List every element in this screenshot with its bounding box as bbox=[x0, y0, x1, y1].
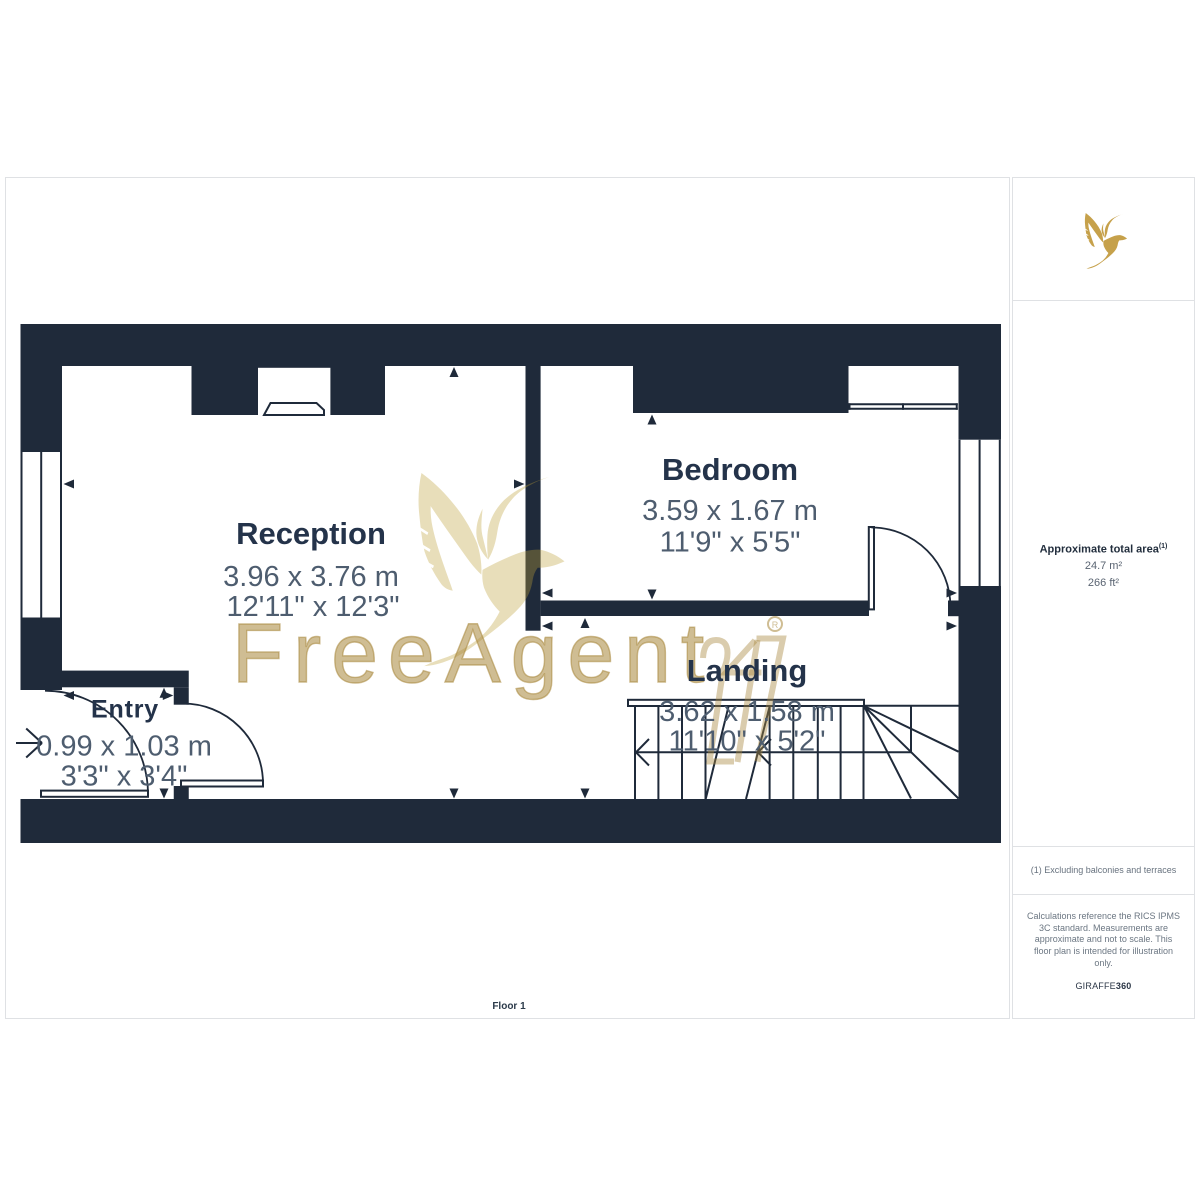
svg-text:Landing: Landing bbox=[687, 653, 808, 688]
svg-text:11'10" x 5'2": 11'10" x 5'2" bbox=[669, 726, 826, 758]
svg-text:12'11" x 12'3": 12'11" x 12'3" bbox=[226, 591, 399, 623]
svg-text:Entry: Entry bbox=[91, 696, 159, 724]
svg-text:Bedroom: Bedroom bbox=[662, 452, 798, 487]
svg-text:Reception: Reception bbox=[236, 516, 386, 551]
svg-text:R: R bbox=[772, 620, 779, 630]
svg-text:3.96 x 3.76 m: 3.96 x 3.76 m bbox=[223, 561, 399, 593]
svg-text:3.59 x 1.67 m: 3.59 x 1.67 m bbox=[642, 495, 818, 527]
svg-text:11'9" x 5'5": 11'9" x 5'5" bbox=[660, 527, 801, 559]
svg-text:0.99 x 1.03 m: 0.99 x 1.03 m bbox=[36, 731, 212, 763]
svg-text:3'3" x 3'4": 3'3" x 3'4" bbox=[61, 761, 188, 793]
svg-text:3.62 x 1.58 m: 3.62 x 1.58 m bbox=[659, 696, 835, 728]
